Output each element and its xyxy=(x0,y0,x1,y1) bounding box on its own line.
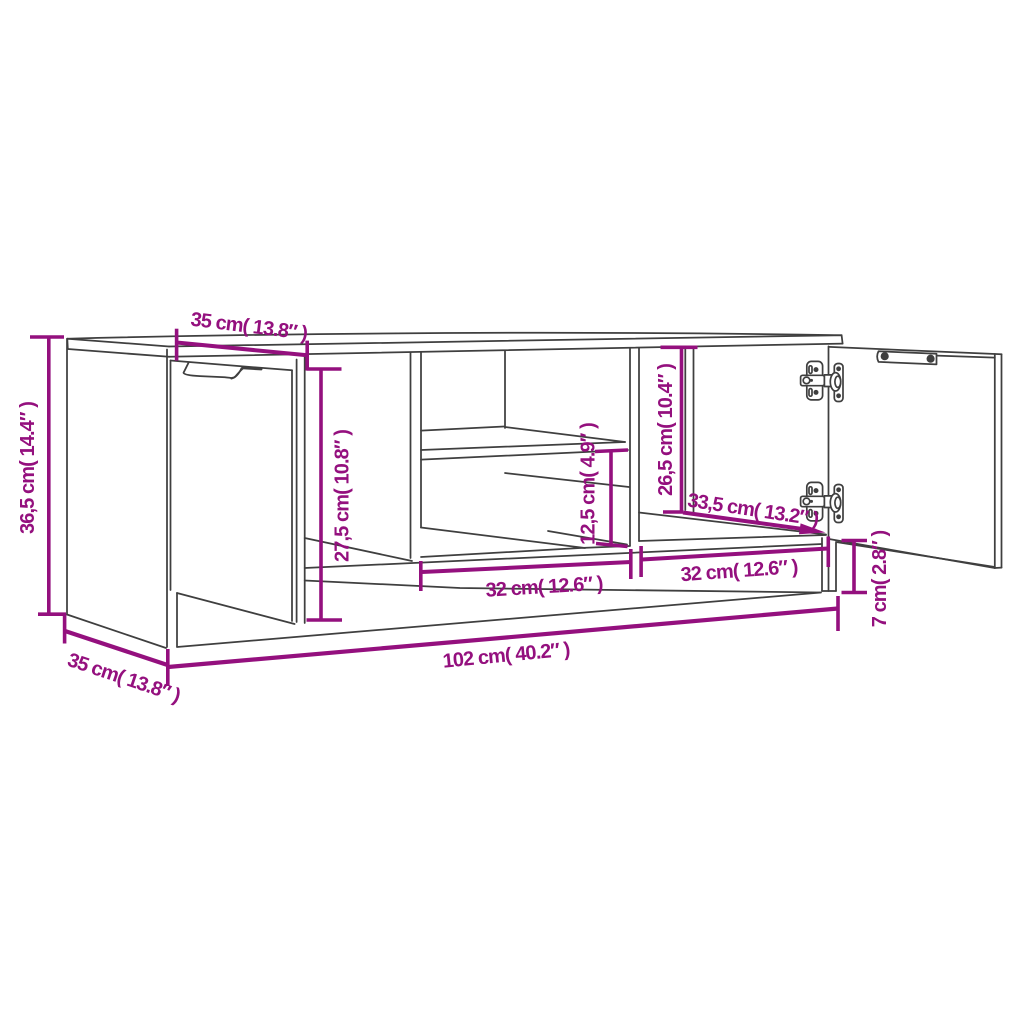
svg-text:26,5 cm( 10.4″ ): 26,5 cm( 10.4″ ) xyxy=(655,364,677,496)
svg-text:12,5 cm( 4.9″ ): 12,5 cm( 4.9″ ) xyxy=(578,423,600,545)
svg-text:35 cm( 13.8″ ): 35 cm( 13.8″ ) xyxy=(65,649,183,707)
svg-text:32 cm( 12.6″ ): 32 cm( 12.6″ ) xyxy=(485,573,603,602)
svg-text:102 cm( 40.2″ ): 102 cm( 40.2″ ) xyxy=(442,639,571,673)
svg-text:32 cm( 12.6″ ): 32 cm( 12.6″ ) xyxy=(680,556,799,586)
svg-text:33,5 cm( 13.2″ ): 33,5 cm( 13.2″ ) xyxy=(686,490,820,531)
svg-text:7 cm( 2.8″ ): 7 cm( 2.8″ ) xyxy=(869,530,891,627)
svg-text:27,5 cm( 10.8″ ): 27,5 cm( 10.8″ ) xyxy=(332,430,354,562)
svg-text:35 cm( 13.8″ ): 35 cm( 13.8″ ) xyxy=(189,309,308,345)
svg-text:36,5 cm( 14.4″ ): 36,5 cm( 14.4″ ) xyxy=(17,402,39,534)
